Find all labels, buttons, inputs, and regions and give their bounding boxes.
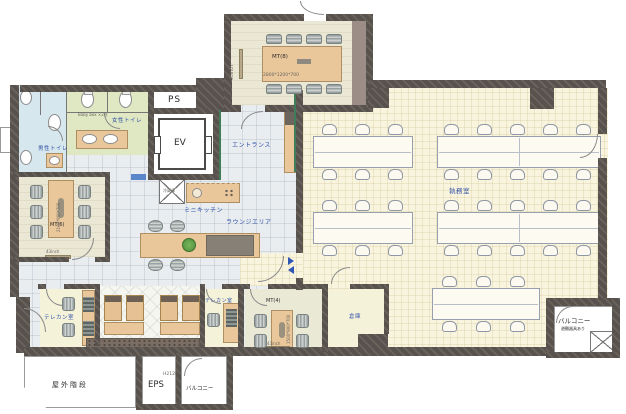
office-chair	[388, 124, 403, 135]
office-chair	[388, 169, 403, 180]
mt4-table-size: 1500*900*700	[286, 315, 291, 344]
booth-headrest	[105, 296, 121, 302]
office-chair	[476, 321, 491, 332]
office-chair	[355, 200, 370, 211]
office-chair	[543, 169, 558, 180]
office-chair	[510, 169, 525, 180]
meeting-chair	[306, 34, 322, 44]
side-chair	[78, 225, 91, 239]
meeting-chair	[306, 84, 322, 94]
wall	[13, 257, 69, 262]
office-chair	[442, 276, 457, 287]
office-chair	[543, 245, 558, 256]
wall	[24, 347, 548, 356]
office-chair	[576, 245, 591, 256]
wall	[105, 172, 110, 262]
wall	[13, 172, 110, 177]
office-label: 執務室	[449, 185, 470, 195]
booth-headrest	[183, 296, 199, 302]
stove-icon	[224, 189, 234, 197]
ev-label: EV	[174, 138, 186, 148]
double-door-marker	[288, 257, 294, 265]
mt8-label: MT(8)	[272, 54, 288, 60]
office-chair	[510, 124, 525, 135]
office-chair	[322, 124, 337, 135]
mens-toilet-label: 男性トイレ	[38, 144, 68, 152]
wall	[227, 353, 233, 410]
wall	[238, 284, 244, 348]
side-chair	[254, 314, 267, 328]
booth-chair	[126, 295, 144, 321]
evac-note: 避難器具あり	[561, 326, 585, 332]
office-chair	[355, 124, 370, 135]
column	[368, 88, 389, 108]
meeting-chair	[266, 34, 282, 44]
wall	[350, 284, 388, 289]
mt4-label: MT(4)	[266, 298, 280, 304]
balcony-right-label: バルコニー	[558, 315, 590, 325]
ev-door-jamb	[205, 136, 212, 154]
storage-label: 倉庫	[349, 312, 361, 320]
desk-island	[313, 212, 413, 244]
office-chair	[477, 124, 492, 135]
meeting-chair	[266, 84, 282, 94]
side-chair	[296, 334, 309, 348]
kitchen-sink-icon	[192, 188, 202, 198]
side-chair	[296, 314, 309, 328]
mt8-table-size: 2800*1200*700	[263, 73, 299, 78]
height-note: H2120	[163, 372, 178, 377]
wall	[546, 298, 618, 306]
office-chair	[576, 169, 591, 180]
double-door-marker	[288, 266, 294, 274]
wall	[148, 174, 219, 180]
wall	[546, 300, 554, 356]
office-chair	[444, 169, 459, 180]
wall	[296, 90, 303, 253]
toilet-partition	[66, 85, 67, 172]
mt8-table-tray	[297, 59, 311, 64]
urinal-icon	[20, 150, 32, 165]
side-chair	[78, 205, 91, 219]
booth-headrest	[127, 296, 143, 302]
lounge-chair	[148, 259, 163, 271]
desk-island	[432, 288, 540, 320]
desk-island	[313, 136, 413, 168]
side-chair	[62, 323, 75, 337]
wall	[38, 284, 46, 289]
wall	[265, 105, 366, 112]
wall	[598, 88, 607, 134]
womens-toilet-label: 女性トイレ	[112, 116, 142, 124]
meeting-chair	[326, 34, 342, 44]
booth-chair	[160, 295, 178, 321]
office-chair	[355, 245, 370, 256]
mt8-screen-size: 50inch	[230, 65, 235, 80]
office-chair	[576, 200, 591, 211]
side-chair	[30, 205, 43, 219]
mt6-screen-size: 43inch	[46, 249, 59, 254]
booth-chair	[182, 295, 200, 321]
mt8-screen	[239, 49, 243, 79]
sink-icon	[103, 134, 118, 144]
side-chair	[30, 185, 43, 199]
outdoor-stairs-label: 屋外階段	[52, 380, 88, 390]
entrance-mat	[131, 174, 146, 180]
balcony-bottom-label: バルコニー	[186, 384, 213, 392]
office-chair	[477, 245, 492, 256]
wall	[224, 14, 231, 112]
entrance-label: エントランス	[232, 140, 271, 149]
booth-table	[160, 322, 200, 335]
meeting-chair	[286, 84, 302, 94]
wall	[358, 334, 388, 350]
desk-island	[437, 212, 601, 244]
wall	[148, 85, 154, 110]
wall	[136, 404, 233, 410]
wall	[322, 284, 328, 352]
wall	[231, 105, 241, 112]
urinal-icon	[20, 90, 32, 105]
wall	[95, 284, 100, 346]
monitor-icon	[83, 321, 94, 336]
wall	[176, 353, 181, 410]
floor-plan: MT(8) 2800*1200*700 50inch PS EV エントランス …	[0, 0, 626, 414]
eps-label: EPS	[148, 380, 164, 390]
desk-island	[437, 136, 601, 168]
monitor-icon	[83, 297, 94, 312]
side-chair	[62, 297, 75, 311]
booth-headrest	[161, 296, 177, 302]
door-arc	[300, 1, 324, 15]
green-accent	[294, 92, 296, 172]
wall	[612, 298, 620, 358]
mt8-wall-band	[352, 21, 366, 105]
mt6-table-size: 2100*900*700	[56, 203, 61, 232]
office-chair	[388, 200, 403, 211]
plant-icon	[182, 238, 196, 252]
side-chair	[207, 313, 220, 327]
office-chair	[576, 124, 591, 135]
side-chair	[78, 185, 91, 199]
wall	[268, 284, 326, 289]
booth-table	[104, 322, 144, 335]
wall	[136, 353, 142, 410]
baby-box-note: Baby box ×2台	[78, 112, 108, 118]
fridge-label: 冷蔵庫	[163, 188, 175, 194]
office-chair	[322, 169, 337, 180]
meeting-chair	[326, 84, 342, 94]
lounge-chair	[148, 220, 163, 232]
telecom1-label: テレカン室	[44, 313, 74, 321]
lounge-sofa	[206, 235, 254, 256]
office-chair	[510, 276, 525, 287]
wall	[10, 85, 19, 297]
office-chair	[477, 169, 492, 180]
wall	[546, 352, 620, 358]
wall	[200, 284, 205, 348]
telecom2-label: テレカン室	[205, 297, 233, 304]
wall	[370, 80, 606, 88]
office-chair	[510, 245, 525, 256]
ev-door-jamb	[154, 136, 161, 154]
ps-label: PS	[168, 95, 181, 105]
office-chair	[477, 200, 492, 211]
sink-icon	[49, 156, 60, 165]
office-chair	[355, 169, 370, 180]
wall	[95, 257, 110, 262]
office-chair	[322, 245, 337, 256]
office-chair	[510, 200, 525, 211]
column	[530, 88, 554, 109]
mini-kitchen-label: ミニキッチン	[184, 205, 223, 214]
wall	[598, 158, 607, 300]
lounge-chair	[170, 259, 185, 271]
monitor-icon	[226, 309, 237, 327]
office-chair	[444, 245, 459, 256]
office-chair	[442, 321, 457, 332]
office-chair	[444, 200, 459, 211]
wall	[148, 108, 219, 114]
mt4-screen-size: 43inch	[267, 341, 280, 346]
wall	[148, 108, 154, 180]
office-chair	[322, 200, 337, 211]
office-chair	[444, 124, 459, 135]
sink-icon	[82, 134, 97, 144]
side-chair	[30, 225, 43, 239]
mt4-table-tray	[279, 322, 285, 338]
wall	[384, 284, 389, 334]
lounge-chair	[170, 220, 185, 232]
side-chair	[254, 334, 267, 348]
wall	[224, 14, 304, 21]
office-chair	[476, 276, 491, 287]
office-chair	[510, 321, 525, 332]
office-chair	[543, 200, 558, 211]
wall	[20, 85, 202, 92]
booth-chair	[104, 295, 122, 321]
lounge-label: ラウンジエリア	[226, 217, 272, 226]
meeting-chair	[286, 34, 302, 44]
green-accent	[219, 110, 221, 180]
office-chair	[543, 124, 558, 135]
office-chair	[388, 245, 403, 256]
